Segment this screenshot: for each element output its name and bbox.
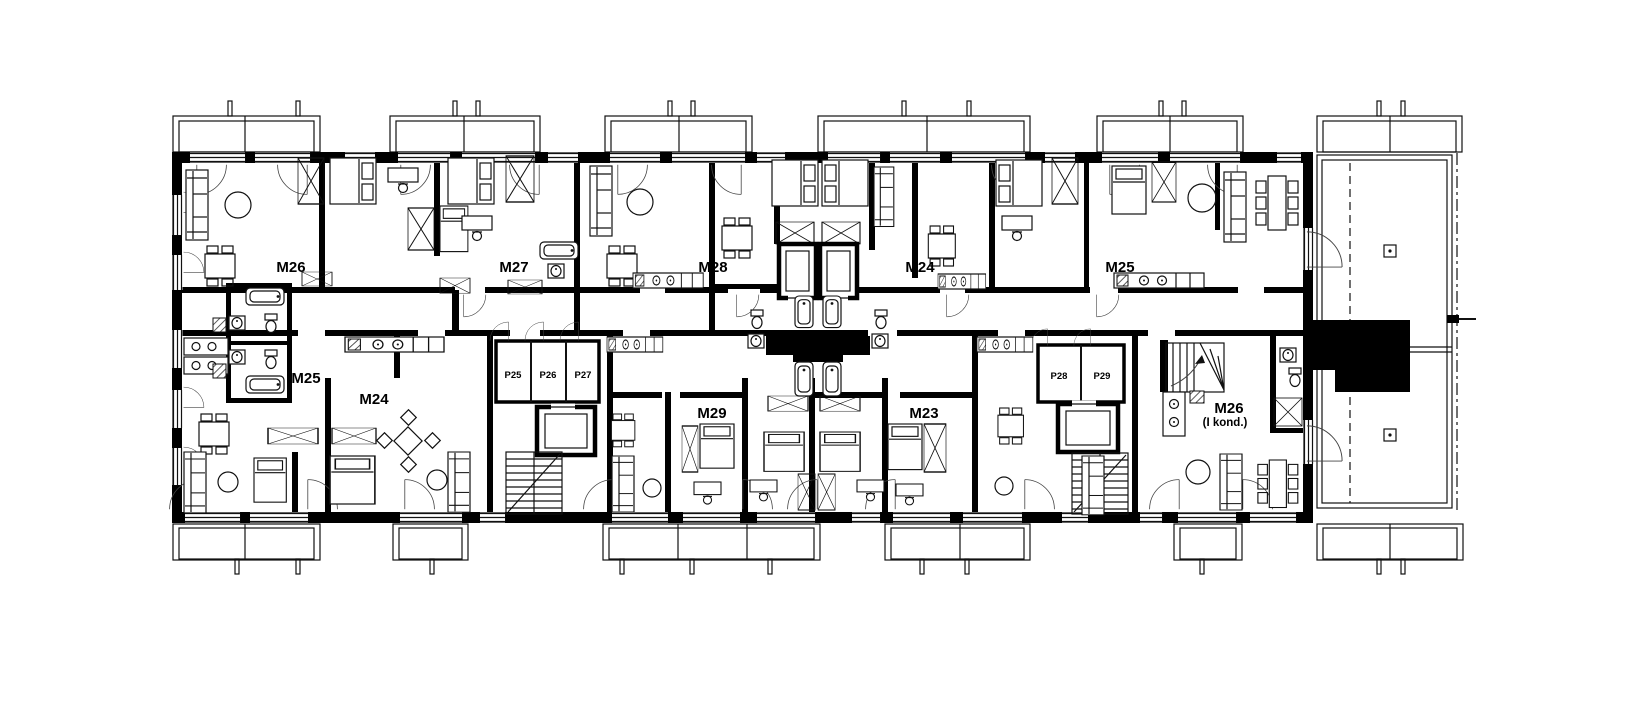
coffee-table-icon: [627, 189, 653, 215]
wardrobe-icon: [1152, 162, 1176, 202]
bed-icon: [448, 158, 494, 204]
sofa-icon: [612, 456, 634, 512]
dining-table-icon: [199, 414, 229, 454]
sofa-icon: [184, 452, 206, 513]
bathtub-icon: [246, 376, 284, 393]
chimney-shaft: [1313, 320, 1410, 370]
bed-icon: [996, 160, 1042, 206]
floor-plan-drawing: M26 M27 M28 M24 M25 M25 M24 M29 M23 M26 …: [0, 0, 1640, 720]
sofa-icon: [448, 452, 470, 512]
desk-chair-icon: [896, 484, 923, 505]
coffee-table-icon: [218, 472, 238, 492]
washbasin-icon: [872, 334, 888, 348]
desk-chair-icon: [857, 480, 884, 501]
dining-table-icon: [722, 218, 752, 258]
kitchen-counter-icon: [345, 337, 444, 352]
storage-label-p26: P26: [540, 370, 557, 381]
desk-chair-icon: [694, 482, 721, 504]
bathtub-icon: [540, 242, 578, 259]
storage-label-p29: P29: [1094, 371, 1111, 382]
wardrobe-icon: [1052, 158, 1078, 204]
toilet-icon: [265, 350, 277, 369]
bed-icon: [254, 458, 286, 502]
right-stair-core: [1038, 343, 1224, 514]
elevator-central-1: [779, 244, 816, 298]
desk-chair-icon: [750, 480, 777, 501]
kitchen-counter-icon: [1163, 392, 1185, 436]
sofa-icon: [1220, 454, 1242, 510]
kitchen-counter-icon: [607, 337, 663, 352]
dining-table-icon: [1258, 460, 1298, 508]
kitchen-counter-icon: [184, 338, 228, 355]
sofa-icon: [874, 167, 894, 227]
coffee-table-icon: [995, 477, 1013, 495]
apartment-label-m29: M29: [697, 405, 726, 422]
apartment-label-m24-top: M24: [905, 259, 935, 276]
dining-table-icon: [611, 414, 634, 447]
kitchen-counter-icon: [633, 273, 703, 288]
wardrobe-icon: [268, 428, 318, 444]
wardrobe-icon: [1274, 398, 1302, 426]
coffee-table-icon: [643, 479, 661, 497]
kitchen-counter-icon: [938, 274, 986, 289]
stove-icon: [1190, 391, 1204, 403]
apartment-label-m26-top: M26: [276, 259, 305, 276]
desk-chair-icon: [388, 168, 418, 193]
gate-latch-icon: [1447, 315, 1459, 323]
bathtub-icon: [795, 296, 813, 328]
wardrobe-icon: [820, 396, 860, 411]
kitchen-counter-icon: [977, 337, 1033, 352]
bed-icon: [330, 456, 375, 504]
apartment-sublabel-m26-duplex: (I kond.): [1203, 417, 1248, 429]
bed-icon: [820, 432, 860, 471]
bed-icon: [822, 160, 868, 206]
bathtub-icon: [246, 288, 284, 305]
bathtub-icon: [823, 296, 841, 328]
apartment-label-m25-top: M25: [1105, 259, 1134, 276]
coffee-table-icon: [1186, 460, 1210, 484]
sofa-icon: [590, 166, 612, 236]
bed-icon: [888, 424, 922, 470]
terrace: [1313, 153, 1476, 510]
left-stair-core: [496, 341, 599, 514]
bed-icon: [330, 158, 376, 204]
central-core: [748, 222, 888, 396]
washbasin-icon: [1280, 348, 1296, 362]
apartment-label-m24-bottom: M24: [359, 391, 389, 408]
sofa-icon: [1224, 172, 1246, 242]
wardrobe-icon: [924, 424, 946, 472]
wardrobe-icon: [768, 396, 808, 411]
toilet-icon: [751, 310, 763, 329]
storage-label-p27: P27: [575, 370, 592, 381]
dining-table-icon: [607, 246, 637, 286]
wardrobe-icon: [818, 474, 835, 510]
washbasin-icon: [748, 334, 764, 348]
coffee-table-icon: [1188, 184, 1216, 212]
apartment-label-m23: M23: [909, 405, 938, 422]
bathtub-icon: [795, 362, 813, 396]
apartment-label-m27: M27: [499, 259, 528, 276]
bed-icon: [772, 160, 818, 206]
table-icon: [394, 427, 422, 455]
sofa-icon: [186, 170, 208, 240]
bed-icon: [700, 424, 734, 468]
shaft-icon: [213, 318, 226, 332]
toilet-icon: [875, 310, 887, 329]
dining-table-icon: [998, 408, 1024, 444]
wardrobe-icon: [822, 222, 860, 244]
toilet-icon: [1289, 368, 1301, 387]
toilet-icon: [265, 314, 277, 333]
storage-label-p28: P28: [1051, 371, 1068, 382]
apartment-label-m25-bottom: M25: [291, 370, 320, 387]
sofa-icon: [1082, 456, 1104, 515]
coffee-table-icon: [427, 470, 447, 490]
bed-icon: [764, 432, 804, 471]
coffee-table-icon: [225, 192, 251, 218]
storage-label-p25: P25: [505, 370, 523, 381]
apartment-label-m28: M28: [698, 259, 727, 276]
shaft-icon: [213, 364, 226, 378]
floor-plan-canvas: M26 M27 M28 M24 M25 M25 M24 M29 M23 M26 …: [0, 0, 1640, 720]
washbasin-icon: [548, 264, 564, 278]
bed-icon: [1112, 166, 1146, 214]
apartment-label-m26-duplex: M26: [1214, 400, 1243, 417]
wardrobe-icon: [332, 428, 376, 444]
wardrobe-icon: [408, 208, 434, 250]
wardrobe-icon: [302, 272, 332, 286]
washbasin-icon: [229, 350, 245, 364]
dining-table-icon: [205, 246, 235, 286]
desk-chair-icon: [1002, 216, 1032, 241]
elevator-central-2: [820, 244, 857, 298]
wardrobe-icon: [776, 222, 814, 244]
washbasin-icon: [229, 316, 245, 330]
dining-table-icon: [1256, 176, 1298, 230]
wardrobe-icon: [682, 426, 698, 472]
bathtub-icon: [823, 362, 841, 396]
